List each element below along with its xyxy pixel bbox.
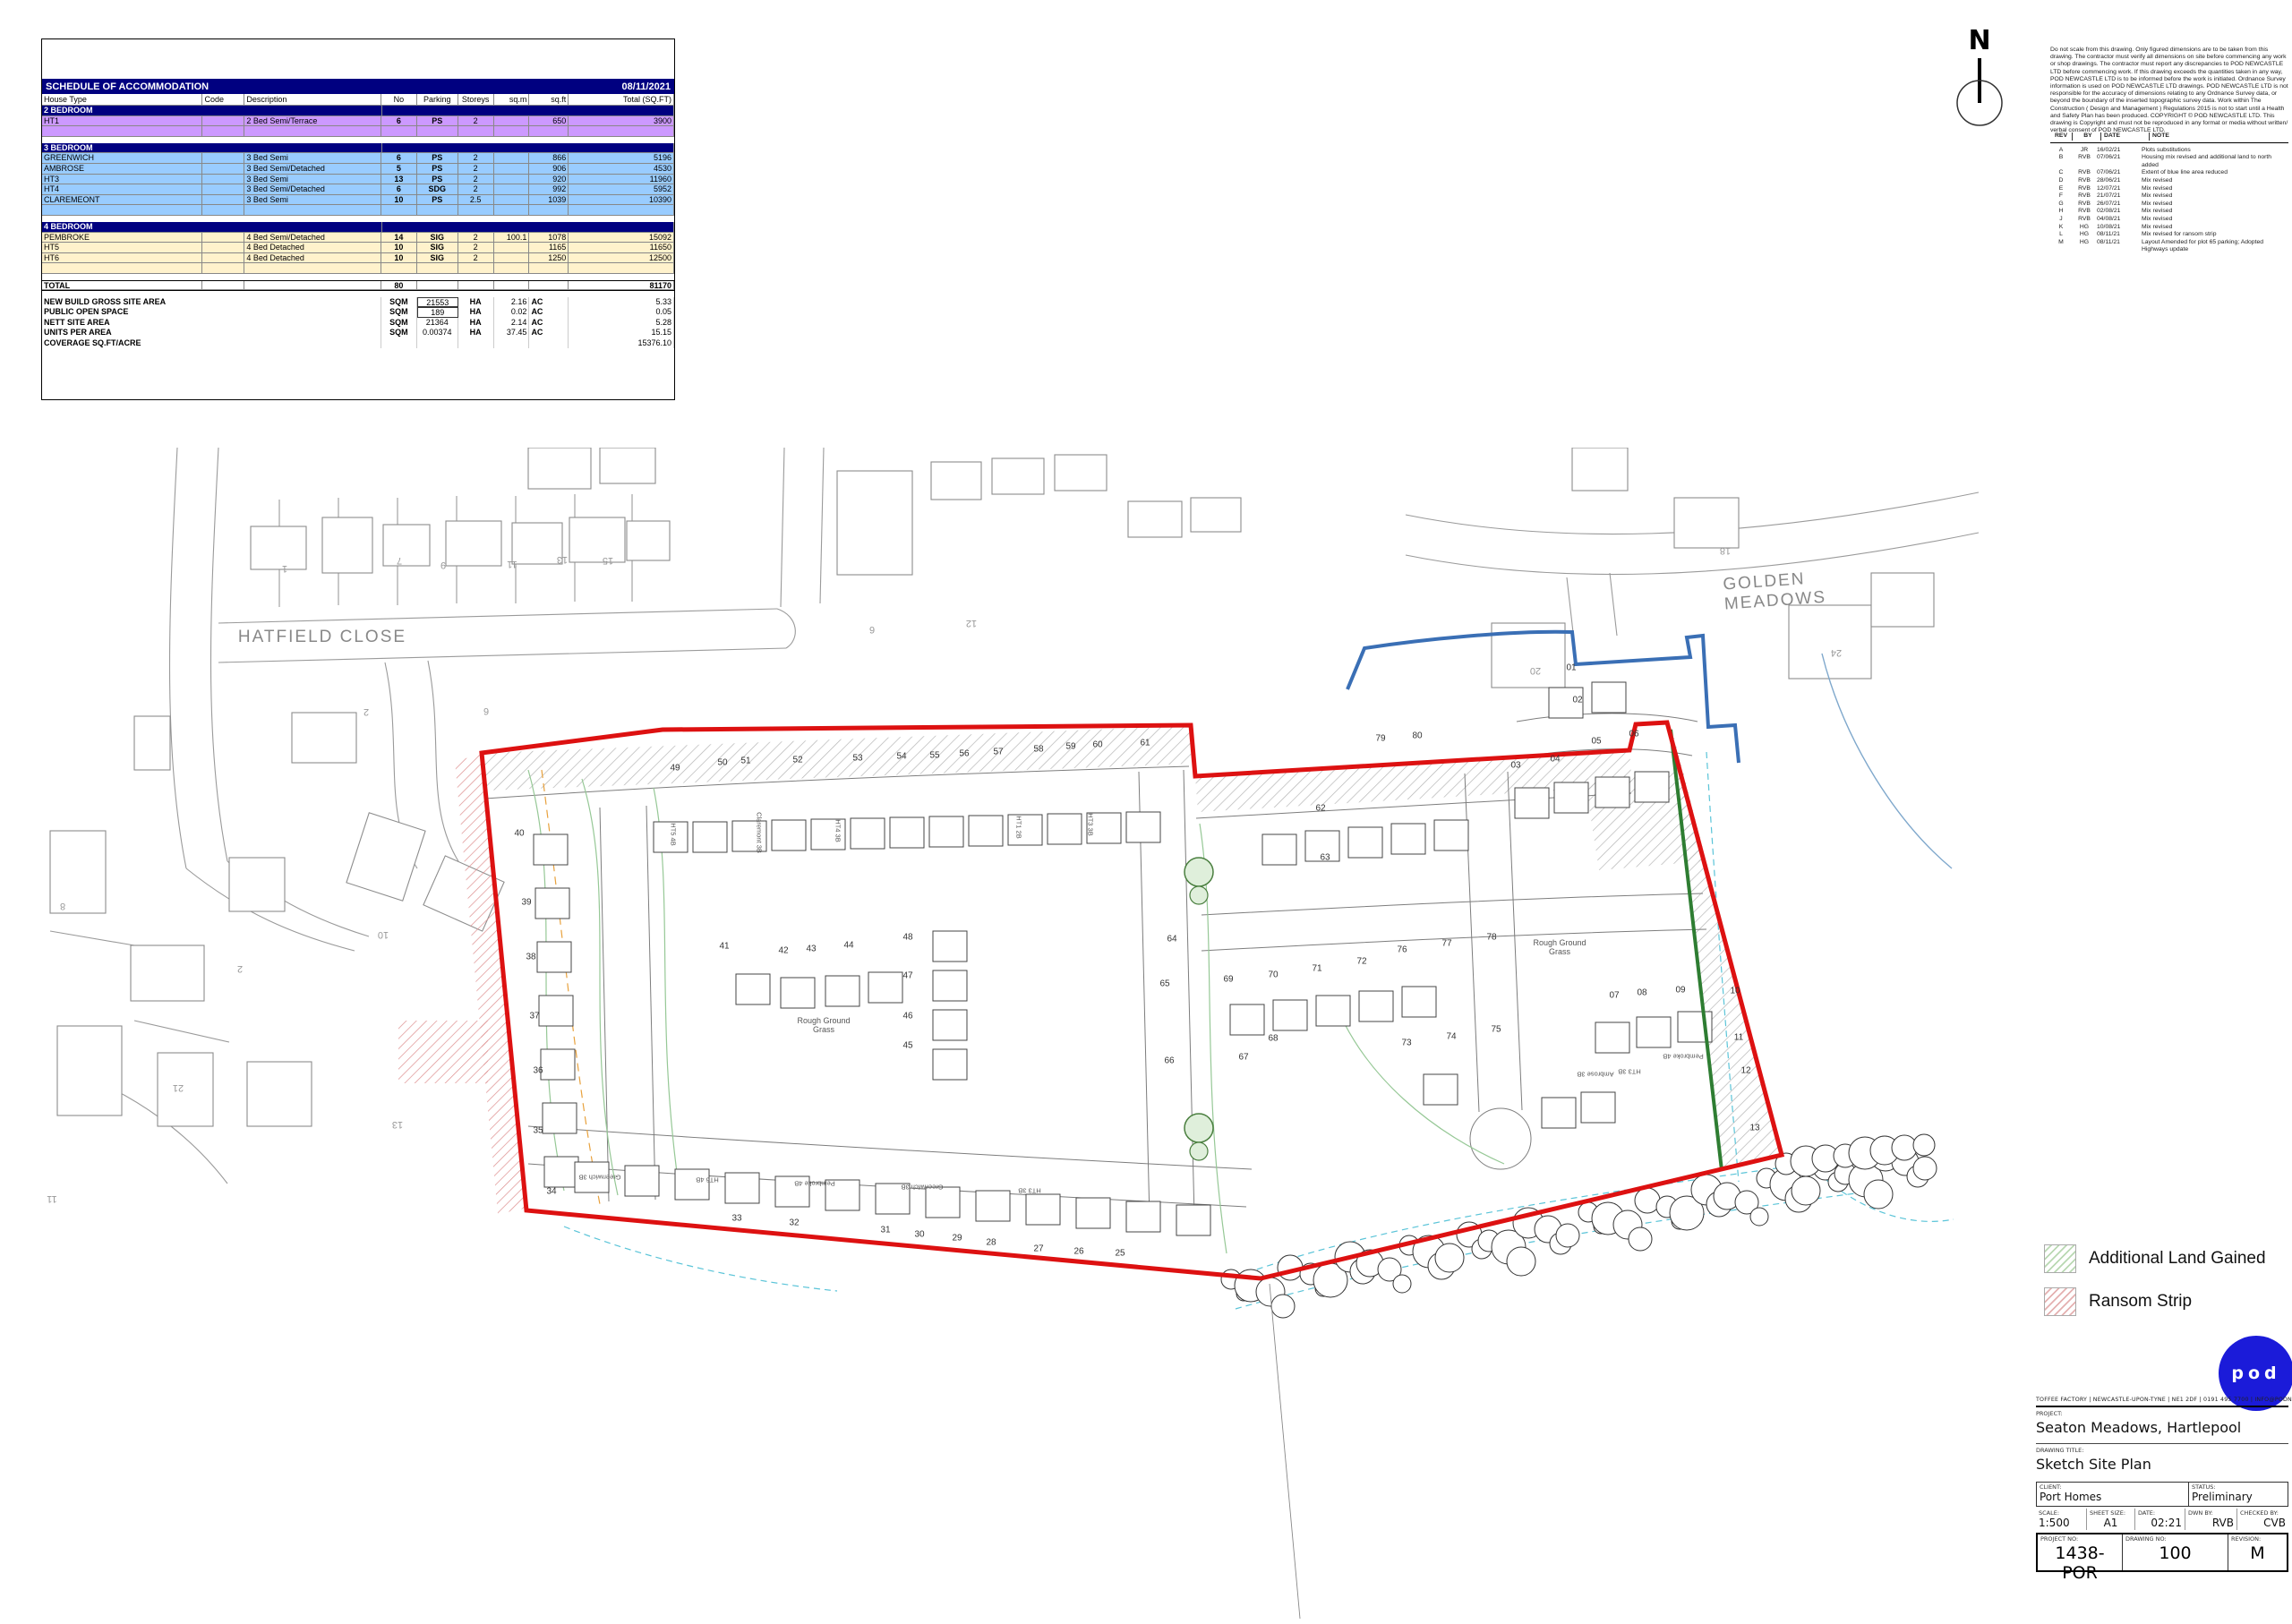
table-cell (202, 263, 244, 274)
schedule-title-bar: SCHEDULE OF ACCOMMODATION 08/11/2021 (42, 79, 674, 94)
title-block-divider (2036, 1443, 2288, 1444)
table-cell (569, 126, 674, 137)
table-cell: 11650 (569, 243, 674, 253)
revision-row: DRVB28/06/21Mix revised (2050, 177, 2288, 185)
sheet-value: A1 (2090, 1517, 2132, 1529)
table-cell: 3 Bed Semi (244, 195, 381, 206)
schedule-title: SCHEDULE OF ACCOMMODATION (46, 81, 209, 92)
legend-label: Additional Land Gained (2089, 1249, 2266, 1269)
table-cell (494, 281, 530, 290)
revision-cell: Mix revised (2142, 192, 2288, 201)
table-cell (244, 263, 381, 274)
drawing-no-label: DRAWING NO: (2125, 1535, 2225, 1543)
table-cell (529, 205, 569, 216)
table-cell (529, 263, 569, 274)
sw-red-hatch-swatch (2044, 1287, 2076, 1316)
metric-label: NEW BUILD GROSS SITE AREA (42, 297, 381, 308)
checked-by-value: CVB (2240, 1517, 2286, 1529)
checked-by-label: CHECKED BY: (2240, 1509, 2286, 1517)
revision-header: REVBYDATENOTE (2050, 132, 2288, 143)
metric-cell: AC (529, 328, 569, 338)
table-cell (458, 126, 494, 137)
site-plan-drawing (27, 448, 1979, 1620)
date-value: 02:21 (2138, 1517, 2182, 1529)
table-cell (202, 153, 244, 164)
table-cell: 3900 (569, 116, 674, 127)
table-cell (202, 243, 244, 253)
metric-cell: SQM (381, 297, 417, 308)
table-row (42, 205, 674, 216)
table-row: HT64 Bed Detached10SIG2125012500 (42, 253, 674, 264)
table-row: COVERAGE SQ.FT/ACRE15376.10 (42, 338, 674, 349)
contact-strip: TOFFEE FACTORY | NEWCASTLE-UPON-TYNE | N… (2036, 1397, 2288, 1407)
revision-cell: RVB (2072, 185, 2097, 193)
schedule-rows: House TypeCodeDescriptionNoParkingStorey… (42, 94, 674, 348)
revision-cell: 10/08/21 (2097, 224, 2142, 232)
revision-cell: Mix revised (2142, 177, 2288, 185)
sw-green-hatch-swatch (2044, 1244, 2076, 1273)
table-cell (458, 205, 494, 216)
revision-cell: 07/06/21 (2097, 169, 2142, 177)
table-row: TOTAL8081170 (42, 280, 674, 291)
revision-cell: RVB (2072, 201, 2097, 209)
revision-value: M (2231, 1543, 2284, 1563)
table-cell (202, 126, 244, 137)
table-cell (494, 164, 530, 175)
table-cell (202, 253, 244, 264)
table-cell (569, 263, 674, 274)
metric-cell: 5.33 (569, 297, 674, 308)
drawing-title-label: DRAWING TITLE: (2036, 1447, 2288, 1454)
table-cell (244, 126, 381, 137)
sheet-label: SHEET SIZE: (2090, 1509, 2132, 1517)
table-cell (569, 205, 674, 216)
table-cell: 10 (381, 243, 417, 253)
revision-row: AJR16/02/21Plots substitutions (2050, 147, 2288, 155)
revision-cell: B (2050, 154, 2072, 169)
date-label: DATE: (2138, 1509, 2182, 1517)
table-cell: GREENWICH (42, 153, 202, 164)
table-cell: 11960 (569, 175, 674, 185)
table-cell: 3 Bed Semi/Detached (244, 184, 381, 195)
table-cell (494, 243, 530, 253)
revision-cell: L (2050, 231, 2072, 239)
drawing-sheet: { "schedule": { "title": "SCHEDULE OF AC… (0, 0, 2292, 1620)
status-label: STATUS: (2192, 1483, 2285, 1491)
metric-cell: 15.15 (569, 328, 674, 338)
revision-cell: Plots substitutions (2142, 147, 2288, 155)
client-label: CLIENT: (2040, 1483, 2185, 1491)
metric-cell: AC (529, 307, 569, 318)
table-cell (417, 281, 458, 290)
site-plan: HATFIELD CLOSEGOLDEN MEADOWSRough Ground… (27, 448, 1979, 1620)
revision-cell: 21/07/21 (2097, 192, 2142, 201)
revision-row: BRVB07/06/21Housing mix revised and addi… (2050, 154, 2288, 169)
table-cell: 10 (381, 195, 417, 206)
table-cell (202, 175, 244, 185)
revision-cell: F (2050, 192, 2072, 201)
table-cell: 80 (381, 281, 417, 290)
revision-cell: G (2050, 201, 2072, 209)
drawing-no-value: 100 (2125, 1543, 2225, 1563)
table-cell: Parking (417, 94, 458, 106)
general-notes: Do not scale from this drawing. Only fig… (2050, 47, 2288, 134)
table-cell (494, 195, 530, 206)
table-cell: CLAREMEONT (42, 195, 202, 206)
tree-belt (1221, 1134, 1937, 1318)
revision-cell: 02/08/21 (2097, 208, 2142, 216)
revision-col-header: NOTE (2149, 132, 2288, 141)
metric-label: UNITS PER AREA (42, 328, 381, 338)
table-row (42, 263, 674, 274)
revision-cell: M (2050, 239, 2072, 254)
table-cell: 3 Bed Semi (244, 175, 381, 185)
table-cell (417, 263, 458, 274)
table-cell (42, 126, 202, 137)
client-value: Port Homes (2040, 1491, 2185, 1503)
revision-cell: H (2050, 208, 2072, 216)
revision-cell: Mix revised (2142, 208, 2288, 216)
date-cell: DATE: 02:21 (2134, 1509, 2185, 1530)
table-cell: 81170 (569, 281, 674, 290)
table-cell (381, 263, 417, 274)
revision-row: MHG08/11/21Layout Amended for plot 65 pa… (2050, 239, 2288, 254)
table-row: HT33 Bed Semi13PS292011960 (42, 175, 674, 185)
table-cell: No (381, 94, 417, 106)
metric-cell: HA (458, 307, 494, 318)
table-cell: PS (417, 153, 458, 164)
metric-cell: 0.02 (494, 307, 530, 318)
table-row: HT43 Bed Semi/Detached6SDG29925952 (42, 184, 674, 195)
table-row (42, 126, 674, 137)
table-cell: HT1 (42, 116, 202, 127)
table-row: HT12 Bed Semi/Terrace6PS26503900 (42, 116, 674, 127)
metric-cell: SQM (381, 318, 417, 329)
table-cell: 2 (458, 184, 494, 195)
table-row: 4 BEDROOM (42, 222, 674, 233)
table-cell (529, 281, 569, 290)
revision-row: GRVB26/07/21Mix revised (2050, 201, 2288, 209)
revision-table: REVBYDATENOTE AJR16/02/21Plots substitut… (2050, 132, 2288, 254)
table-cell: SIG (417, 253, 458, 264)
table-cell (458, 263, 494, 274)
table-cell: 6 (381, 116, 417, 127)
revision-cell: 28/06/21 (2097, 177, 2142, 185)
drawn-by-label: DWN BY: (2188, 1509, 2234, 1517)
table-cell (202, 164, 244, 175)
table-cell (42, 263, 202, 274)
table-cell (202, 233, 244, 244)
revision-row: HRVB02/08/21Mix revised (2050, 208, 2288, 216)
table-row: NETT SITE AREASQM21364HA2.14AC5.28 (42, 318, 674, 329)
section-header: 2 BEDROOM (42, 106, 382, 116)
metric-cell: SQM (381, 307, 417, 318)
drawing-number-row: PROJECT NO: 1438-POR DRAWING NO: 100 REV… (2036, 1533, 2288, 1572)
north-arrow: N (1941, 25, 2018, 132)
revision-cell: RVB (2072, 177, 2097, 185)
revision-cell: K (2050, 224, 2072, 232)
revision-cell: Mix revised (2142, 201, 2288, 209)
table-cell: Description (244, 94, 381, 106)
revision-cell: HG (2072, 239, 2097, 254)
table-cell (494, 253, 530, 264)
table-cell: Code (202, 94, 244, 106)
adopted-highway-hatch-west (482, 726, 1192, 791)
revision-cell: REVISION: M (2228, 1534, 2287, 1570)
table-cell: 2.5 (458, 195, 494, 206)
table-cell (529, 126, 569, 137)
section-header: 3 BEDROOM (42, 143, 382, 154)
table-cell (202, 195, 244, 206)
metric-cell: 2.16 (494, 297, 530, 308)
metric-label: PUBLIC OPEN SPACE (42, 307, 381, 318)
metric-cell: 2.14 (494, 318, 530, 329)
section-header: 4 BEDROOM (42, 222, 382, 233)
table-cell: 2 (458, 116, 494, 127)
drawing-title: Sketch Site Plan (2036, 1456, 2288, 1473)
table-cell: SIG (417, 243, 458, 253)
table-cell: 10 (381, 253, 417, 264)
project-no-cell: PROJECT NO: 1438-POR (2038, 1534, 2122, 1570)
table-cell (494, 263, 530, 274)
project-label: PROJECT: (2036, 1410, 2288, 1417)
north-arrow-icon (1941, 56, 2018, 133)
table-row: 3 BEDROOM (42, 143, 674, 154)
table-cell: 4 Bed Semi/Detached (244, 233, 381, 244)
revision-cell: Mix revised (2142, 216, 2288, 224)
table-cell: PS (417, 195, 458, 206)
table-row: CLAREMEONT3 Bed Semi10PS2.5103910390 (42, 195, 674, 206)
schedule-date: 08/11/2021 (622, 81, 671, 92)
project-no-label: PROJECT NO: (2040, 1535, 2119, 1543)
status-cell: STATUS: Preliminary (2189, 1483, 2288, 1506)
table-cell: 5 (381, 164, 417, 175)
table-cell (202, 116, 244, 127)
table-cell (202, 281, 244, 290)
legend-item: Ransom Strip (2044, 1287, 2288, 1316)
metric-cell (494, 338, 530, 349)
table-cell (417, 126, 458, 137)
table-cell: 15092 (569, 233, 674, 244)
table-cell: PS (417, 164, 458, 175)
table-row: UNITS PER AREASQM0.00374HA37.45AC15.15 (42, 328, 674, 338)
revision-label: REVISION: (2231, 1535, 2284, 1543)
table-cell: Storeys (458, 94, 494, 106)
table-row: House TypeCodeDescriptionNoParkingStorey… (42, 94, 674, 106)
revision-cell: D (2050, 177, 2072, 185)
table-cell (202, 184, 244, 195)
table-cell (494, 175, 530, 185)
legend-label: Ransom Strip (2089, 1292, 2192, 1312)
revision-cell: RVB (2072, 216, 2097, 224)
revision-cell: Mix revised (2142, 185, 2288, 193)
revision-col-header: DATE (2100, 132, 2149, 141)
table-row: PUBLIC OPEN SPACESQM189HA0.02AC0.05 (42, 307, 674, 318)
table-row: NEW BUILD GROSS SITE AREASQM21553HA2.16A… (42, 297, 674, 308)
revision-cell: HG (2072, 231, 2097, 239)
revision-cell: JR (2072, 147, 2097, 155)
table-cell (494, 126, 530, 137)
revision-cell: 08/11/21 (2097, 239, 2142, 254)
table-cell: 2 (458, 175, 494, 185)
table-cell: 3 Bed Semi (244, 153, 381, 164)
table-cell: House Type (42, 94, 202, 106)
table-cell: 1039 (529, 195, 569, 206)
drawn-by-value: RVB (2188, 1517, 2234, 1529)
metric-cell: HA (458, 318, 494, 329)
client-cell: CLIENT: Port Homes (2037, 1483, 2189, 1506)
table-cell: 1078 (529, 233, 569, 244)
table-cell: 4530 (569, 164, 674, 175)
status-value: Preliminary (2192, 1491, 2285, 1503)
revision-cell: E (2050, 185, 2072, 193)
revision-cell: HG (2072, 224, 2097, 232)
metric-cell (458, 338, 494, 349)
metric-cell: 0.05 (569, 307, 674, 318)
revision-row: JRVB04/08/21Mix revised (2050, 216, 2288, 224)
table-cell: 992 (529, 184, 569, 195)
table-cell: 2 (458, 164, 494, 175)
table-cell: sq.m (494, 94, 530, 106)
table-cell: HT5 (42, 243, 202, 253)
table-cell (417, 205, 458, 216)
revision-col-header: REV (2050, 132, 2072, 141)
feature-trees (1184, 858, 1213, 1160)
table-cell (244, 205, 381, 216)
table-cell: 12500 (569, 253, 674, 264)
table-row: PEMBROKE4 Bed Semi/Detached14SIG2100.110… (42, 233, 674, 244)
revision-row: ERVB12/07/21Mix revised (2050, 185, 2288, 193)
table-row: 2 BEDROOM (42, 106, 674, 116)
metric-cell: AC (529, 318, 569, 329)
table-cell (458, 281, 494, 290)
revision-cell: 12/07/21 (2097, 185, 2142, 193)
table-cell: 2 (458, 153, 494, 164)
table-cell (202, 205, 244, 216)
table-cell (42, 205, 202, 216)
table-cell: PS (417, 175, 458, 185)
revision-cell: RVB (2072, 169, 2097, 177)
table-cell: Total (SQ.FT) (569, 94, 674, 106)
revision-cell: A (2050, 147, 2072, 155)
table-cell: 5952 (569, 184, 674, 195)
table-cell: 13 (381, 175, 417, 185)
metric-cell: 37.45 (494, 328, 530, 338)
metric-label: COVERAGE SQ.FT/ACRE (42, 338, 381, 349)
checked-by-cell: CHECKED BY: CVB (2236, 1509, 2288, 1530)
table-cell: 6 (381, 153, 417, 164)
scale-label: SCALE: (2039, 1509, 2083, 1517)
table-cell: PS (417, 116, 458, 127)
metric-cell (381, 338, 417, 349)
revision-cell: 16/02/21 (2097, 147, 2142, 155)
drawn-by-cell: DWN BY: RVB (2185, 1509, 2236, 1530)
revision-cell: 08/11/21 (2097, 231, 2142, 239)
sheet-cell: SHEET SIZE: A1 (2086, 1509, 2134, 1530)
title-block: TOFFEE FACTORY | NEWCASTLE-UPON-TYNE | N… (2036, 1397, 2288, 1572)
project-no-value: 1438-POR (2040, 1543, 2119, 1583)
revision-cell: RVB (2072, 208, 2097, 216)
metric-cell: 0.00374 (417, 328, 458, 338)
table-row: HT54 Bed Detached10SIG2116511650 (42, 243, 674, 253)
metric-cell: 15376.10 (569, 338, 674, 349)
table-cell (381, 205, 417, 216)
revision-cell: RVB (2072, 192, 2097, 201)
scale-row: SCALE: 1:500 SHEET SIZE: A1 DATE: 02:21 … (2036, 1509, 2288, 1530)
table-cell (494, 184, 530, 195)
revision-cell: 26/07/21 (2097, 201, 2142, 209)
schedule-of-accommodation-table: SCHEDULE OF ACCOMMODATION 08/11/2021 Hou… (41, 38, 675, 400)
table-cell: 906 (529, 164, 569, 175)
table-row: AMBROSE3 Bed Semi/Detached5PS29064530 (42, 164, 674, 175)
table-cell (494, 116, 530, 127)
revision-cell: RVB (2072, 154, 2097, 169)
metric-cell: 21364 (417, 318, 458, 329)
table-cell: 1250 (529, 253, 569, 264)
table-cell: 2 (458, 253, 494, 264)
metric-label: NETT SITE AREA (42, 318, 381, 329)
client-status-row: CLIENT: Port Homes STATUS: Preliminary (2036, 1482, 2288, 1507)
revision-cell: 07/06/21 (2097, 154, 2142, 169)
legend: Additional Land GainedRansom Strip (2044, 1244, 2288, 1330)
table-cell: HT3 (42, 175, 202, 185)
legend-item: Additional Land Gained (2044, 1244, 2288, 1273)
metric-cell: HA (458, 328, 494, 338)
table-cell: SIG (417, 233, 458, 244)
metric-cell: 21553 (417, 297, 458, 308)
ransom-strip-hatch-block (398, 1021, 488, 1083)
table-cell (494, 205, 530, 216)
scale-value: 1:500 (2039, 1517, 2083, 1529)
revision-rows: AJR16/02/21Plots substitutionsBRVB07/06/… (2050, 147, 2288, 254)
table-cell: 2 (458, 243, 494, 253)
table-cell: 866 (529, 153, 569, 164)
revision-cell: 04/08/21 (2097, 216, 2142, 224)
table-cell (381, 126, 417, 137)
table-cell: sq.ft (529, 94, 569, 106)
table-cell: SDG (417, 184, 458, 195)
metric-cell: SQM (381, 328, 417, 338)
table-cell: 2 (458, 233, 494, 244)
table-cell: AMBROSE (42, 164, 202, 175)
pod-logo-text: pod (2231, 1363, 2280, 1383)
table-cell: 4 Bed Detached (244, 253, 381, 264)
metric-cell: 5.28 (569, 318, 674, 329)
metric-cell (529, 338, 569, 349)
table-cell (244, 281, 381, 290)
table-cell: 650 (529, 116, 569, 127)
table-cell (494, 153, 530, 164)
revision-row: CRVB07/06/21Extent of blue line area red… (2050, 169, 2288, 177)
table-cell: 14 (381, 233, 417, 244)
table-cell: 2 Bed Semi/Terrace (244, 116, 381, 127)
table-cell: 5196 (569, 153, 674, 164)
revision-cell: Mix revised for ransom strip (2142, 231, 2288, 239)
table-row: GREENWICH3 Bed Semi6PS28665196 (42, 153, 674, 164)
table-cell: PEMBROKE (42, 233, 202, 244)
revision-row: KHG10/08/21Mix revised (2050, 224, 2288, 232)
project-name: Seaton Meadows, Hartlepool (2036, 1419, 2288, 1436)
metric-cell: 189 (417, 307, 458, 318)
revision-cell: Housing mix revised and additional land … (2142, 154, 2288, 169)
drawing-no-cell: DRAWING NO: 100 (2122, 1534, 2228, 1570)
revision-col-header: BY (2072, 132, 2100, 141)
table-cell: 4 Bed Detached (244, 243, 381, 253)
table-cell: 6 (381, 184, 417, 195)
table-cell: 920 (529, 175, 569, 185)
table-cell: 1165 (529, 243, 569, 253)
revision-cell: Layout Amended for plot 65 parking; Adop… (2142, 239, 2288, 254)
